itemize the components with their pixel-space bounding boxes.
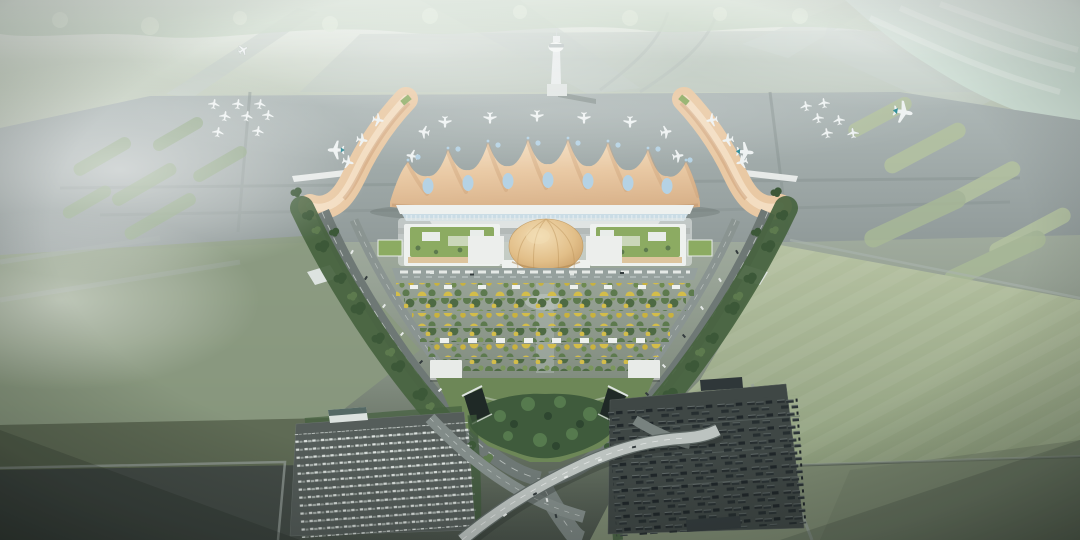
vignette bbox=[0, 0, 1080, 540]
airport-rendering-stage: Bird's-eye architectural rendering of a … bbox=[0, 0, 1080, 540]
airport-aerial-rendering: Bird's-eye architectural rendering of a … bbox=[0, 0, 1080, 540]
